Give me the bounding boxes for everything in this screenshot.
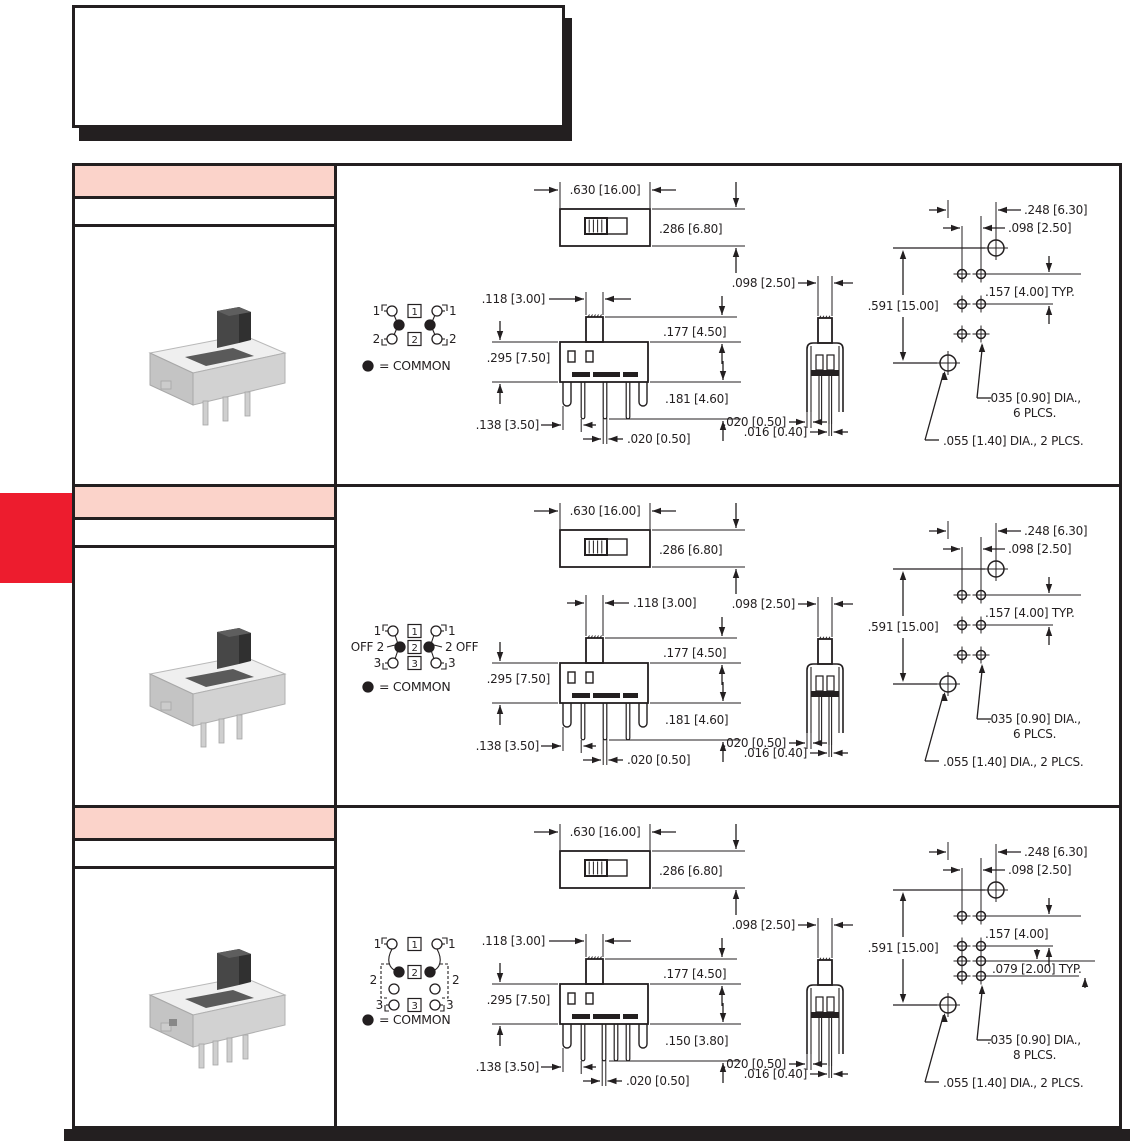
dim-label: 1 bbox=[374, 624, 381, 638]
dim-label: .098 [2.50] bbox=[1008, 221, 1071, 235]
switch-photo bbox=[105, 602, 305, 752]
dim-label: .098 [2.50] bbox=[732, 597, 795, 611]
dim-label: .295 [7.50] bbox=[487, 351, 550, 365]
intro-box bbox=[72, 5, 565, 128]
dim-label: .630 [16.00] bbox=[570, 183, 641, 197]
left-column-row1 bbox=[75, 166, 337, 484]
left-column-row2 bbox=[75, 487, 337, 805]
dim-label: .055 [1.40] DIA., 2 PLCS. bbox=[943, 434, 1083, 448]
circuit-schematic: 121212= COMMON bbox=[363, 304, 456, 373]
dim-label: .016 [0.40] bbox=[744, 746, 807, 760]
dim-label: 1 bbox=[411, 627, 417, 638]
dim-label: .157 [4.00] TYP. bbox=[985, 606, 1074, 620]
dim-label: .138 [3.50] bbox=[476, 1060, 539, 1074]
product-row-1: .630 [16.00].286 [6.80]121212= COMMON.11… bbox=[75, 166, 1119, 487]
dim-label: .098 [2.50] bbox=[732, 276, 795, 290]
dim-label: .248 [6.30] bbox=[1024, 203, 1087, 217]
page-edge-tab bbox=[0, 493, 72, 583]
front-view: .118 [3.00].177 [4.50].295 [7.50].181 [4… bbox=[476, 595, 741, 767]
front-view: .118 [3.00].177 [4.50].295 [7.50].181 [4… bbox=[476, 292, 741, 446]
top-view: .630 [16.00].286 [6.80] bbox=[534, 824, 745, 915]
dim-label: .020 [0.50] bbox=[627, 753, 690, 767]
circuit-schematic: 1231OFF 2312 OFF3= COMMON bbox=[351, 624, 479, 694]
dim-label: 3 bbox=[374, 656, 381, 670]
product-row-2: .630 [16.00].286 [6.80]1231OFF 2312 OFF3… bbox=[75, 487, 1119, 808]
dim-label: 1 bbox=[448, 624, 455, 638]
dim-label: 1 bbox=[374, 937, 381, 951]
photo-cell bbox=[75, 548, 334, 805]
dim-label: .157 [4.00] TYP. bbox=[985, 285, 1074, 299]
front-view: .118 [3.00].177 [4.50].295 [7.50].150 [3… bbox=[476, 934, 741, 1088]
dim-label: 6 PLCS. bbox=[1013, 727, 1056, 741]
dim-label: .181 [4.60] bbox=[665, 713, 728, 727]
pcb-hole-pattern: .248 [6.30].098 [2.50].157 [4.00].079 [2… bbox=[868, 842, 1095, 1090]
dim-label: 2 bbox=[452, 973, 459, 987]
dim-label: .591 [15.00] bbox=[868, 299, 939, 313]
dim-label: .591 [15.00] bbox=[868, 620, 939, 634]
dim-label: 3 bbox=[411, 659, 417, 670]
page-bottom-rule bbox=[64, 1129, 1130, 1141]
dim-label: 2 bbox=[373, 332, 380, 346]
dim-label: 1 bbox=[448, 937, 455, 951]
dim-label: 2 OFF bbox=[445, 640, 479, 654]
dim-label: .098 [2.50] bbox=[732, 918, 795, 932]
dim-label: .295 [7.50] bbox=[487, 993, 550, 1007]
dim-label: .035 [0.90] DIA., bbox=[987, 1033, 1081, 1047]
dim-label: .286 [6.80] bbox=[659, 864, 722, 878]
top-view: .630 [16.00].286 [6.80] bbox=[534, 503, 745, 594]
dim-label: .591 [15.00] bbox=[868, 941, 939, 955]
photo-cell bbox=[75, 869, 334, 1126]
pcb-hole-pattern: .248 [6.30].098 [2.50].157 [4.00] TYP..5… bbox=[868, 200, 1088, 448]
dim-label: .295 [7.50] bbox=[487, 672, 550, 686]
dim-label: 8 PLCS. bbox=[1013, 1048, 1056, 1062]
pcb-hole-pattern: .248 [6.30].098 [2.50].157 [4.00] TYP..5… bbox=[868, 521, 1088, 769]
product-table: .630 [16.00].286 [6.80]121212= COMMON.11… bbox=[72, 163, 1122, 1129]
part-subheader bbox=[75, 520, 334, 548]
dim-label: 2 bbox=[411, 643, 417, 654]
dim-label: .138 [3.50] bbox=[476, 418, 539, 432]
dim-label: .035 [0.90] DIA., bbox=[987, 391, 1081, 405]
technical-drawing-row1: .630 [16.00].286 [6.80]121212= COMMON.11… bbox=[337, 166, 1122, 484]
dim-label: .020 [0.50] bbox=[626, 1074, 689, 1088]
switch-photo bbox=[105, 923, 305, 1073]
dim-label: 3 bbox=[376, 998, 383, 1012]
common-legend: = COMMON bbox=[379, 358, 450, 373]
dim-label: OFF 2 bbox=[351, 640, 384, 654]
dim-label: 3 bbox=[448, 656, 455, 670]
dim-label: 1 bbox=[411, 307, 417, 318]
dim-label: .035 [0.90] DIA., bbox=[987, 712, 1081, 726]
dim-label: .098 [2.50] bbox=[1008, 542, 1071, 556]
dim-label: .020 [0.50] bbox=[627, 432, 690, 446]
dim-label: .118 [3.00] bbox=[633, 596, 696, 610]
circuit-schematic: 123123123= COMMON bbox=[363, 937, 459, 1027]
part-number-header bbox=[75, 166, 334, 199]
part-subheader bbox=[75, 841, 334, 869]
dim-label: 3 bbox=[411, 1001, 417, 1012]
technical-drawing-row2: .630 [16.00].286 [6.80]1231OFF 2312 OFF3… bbox=[337, 487, 1122, 805]
dim-label: .055 [1.40] DIA., 2 PLCS. bbox=[943, 755, 1083, 769]
dim-label: .248 [6.30] bbox=[1024, 524, 1087, 538]
dim-label: 1 bbox=[411, 940, 417, 951]
dim-label: .286 [6.80] bbox=[659, 543, 722, 557]
common-legend: = COMMON bbox=[379, 679, 450, 694]
dim-label: 2 bbox=[449, 332, 456, 346]
left-column-row3 bbox=[75, 808, 337, 1126]
end-view: .098 [2.50].020 [0.50].016 [0.40] bbox=[723, 918, 853, 1081]
dim-label: .098 [2.50] bbox=[1008, 863, 1071, 877]
dim-label: .055 [1.40] DIA., 2 PLCS. bbox=[943, 1076, 1083, 1090]
product-row-3: .630 [16.00].286 [6.80]123123123= COMMON… bbox=[75, 808, 1119, 1126]
dim-label: .118 [3.00] bbox=[482, 934, 545, 948]
photo-cell bbox=[75, 227, 334, 484]
dim-label: .118 [3.00] bbox=[482, 292, 545, 306]
dim-label: .177 [4.50] bbox=[663, 325, 726, 339]
drawing-cell-row2: .630 [16.00].286 [6.80]1231OFF 2312 OFF3… bbox=[337, 487, 1119, 805]
dim-label: 2 bbox=[411, 968, 417, 979]
common-legend: = COMMON bbox=[379, 1012, 450, 1027]
drawing-cell-row3: .630 [16.00].286 [6.80]123123123= COMMON… bbox=[337, 808, 1119, 1126]
dim-label: .016 [0.40] bbox=[744, 1067, 807, 1081]
dim-label: .150 [3.80] bbox=[665, 1034, 728, 1048]
end-view: .098 [2.50].020 [0.50].016 [0.40] bbox=[723, 597, 853, 760]
dim-label: .630 [16.00] bbox=[570, 504, 641, 518]
dim-label: .286 [6.80] bbox=[659, 222, 722, 236]
part-number-header bbox=[75, 487, 334, 520]
dim-label: .079 [2.00] TYP. bbox=[992, 962, 1081, 976]
catalog-page: .630 [16.00].286 [6.80]121212= COMMON.11… bbox=[0, 0, 1130, 1141]
dim-label: 2 bbox=[411, 335, 417, 346]
part-subheader bbox=[75, 199, 334, 227]
switch-photo bbox=[105, 281, 305, 431]
part-number-header bbox=[75, 808, 334, 841]
dim-label: 6 PLCS. bbox=[1013, 406, 1056, 420]
dim-label: .181 [4.60] bbox=[665, 392, 728, 406]
dim-label: 1 bbox=[373, 304, 380, 318]
end-view: .098 [2.50].020 [0.50].016 [0.40] bbox=[723, 276, 853, 439]
dim-label: .630 [16.00] bbox=[570, 825, 641, 839]
dim-label: .177 [4.50] bbox=[663, 967, 726, 981]
dim-label: .138 [3.50] bbox=[476, 739, 539, 753]
drawing-cell-row1: .630 [16.00].286 [6.80]121212= COMMON.11… bbox=[337, 166, 1119, 484]
dim-label: 3 bbox=[446, 998, 453, 1012]
dim-label: .177 [4.50] bbox=[663, 646, 726, 660]
technical-drawing-row3: .630 [16.00].286 [6.80]123123123= COMMON… bbox=[337, 808, 1122, 1126]
dim-label: .157 [4.00] bbox=[985, 927, 1048, 941]
dim-label: .016 [0.40] bbox=[744, 425, 807, 439]
dim-label: .248 [6.30] bbox=[1024, 845, 1087, 859]
dim-label: 2 bbox=[370, 973, 377, 987]
top-view: .630 [16.00].286 [6.80] bbox=[534, 182, 745, 273]
dim-label: 1 bbox=[449, 304, 456, 318]
